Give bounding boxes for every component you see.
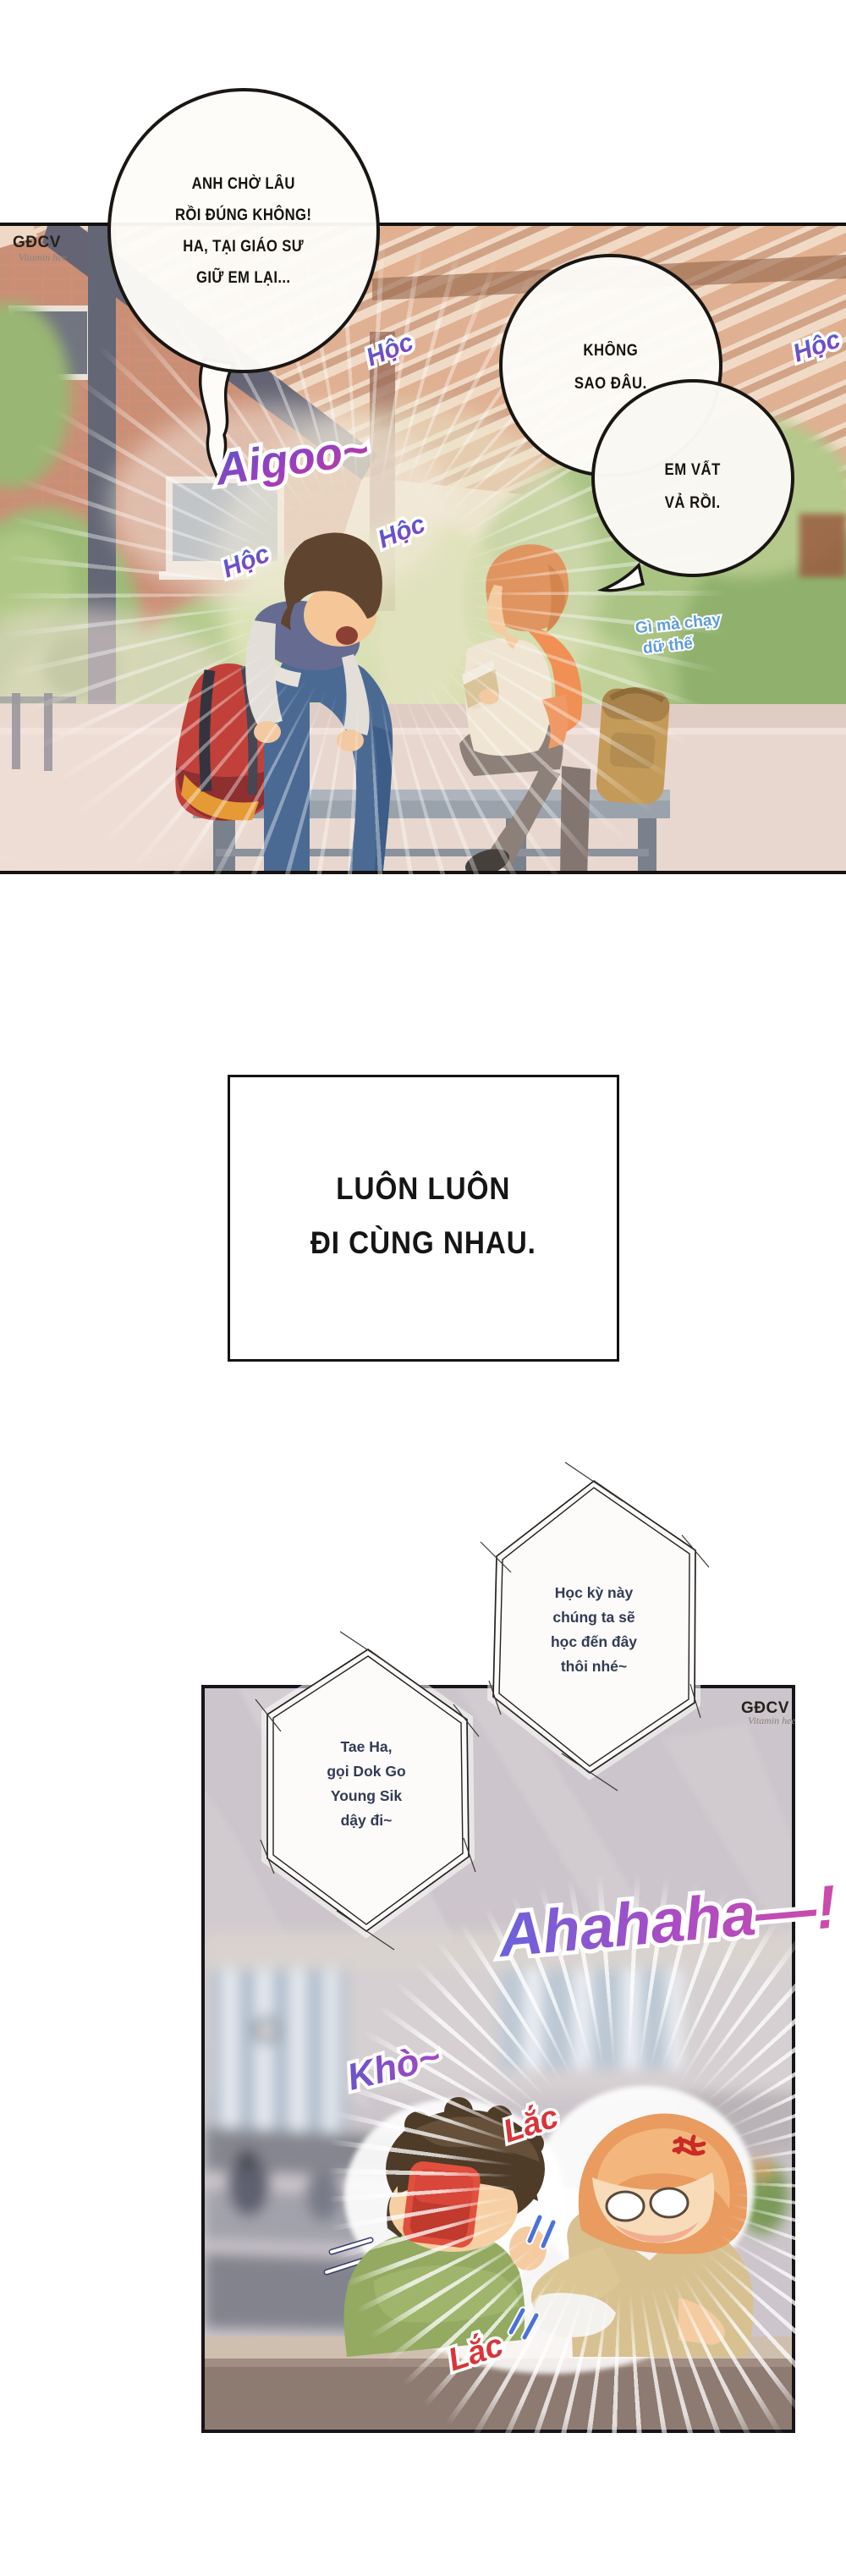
svg-text:Gì mà chạy: Gì mà chạy (634, 611, 722, 638)
svg-text:Hộc: Hộc (362, 328, 417, 372)
svg-text:Lắc: Lắc (498, 2097, 563, 2149)
svg-text:Lắc: Lắc (443, 2326, 508, 2378)
svg-text:Aigoo~: Aigoo~ (211, 424, 371, 495)
svg-text:dữ thế: dữ thế (642, 635, 694, 658)
svg-text:Hộc: Hộc (789, 325, 844, 368)
svg-text:Hộc: Hộc (374, 510, 429, 554)
svg-text:Hộc: Hộc (218, 540, 273, 584)
svg-text:Ahahaha—!: Ahahaha—! (494, 1873, 838, 1970)
svg-text:Khò~: Khò~ (343, 2035, 445, 2098)
